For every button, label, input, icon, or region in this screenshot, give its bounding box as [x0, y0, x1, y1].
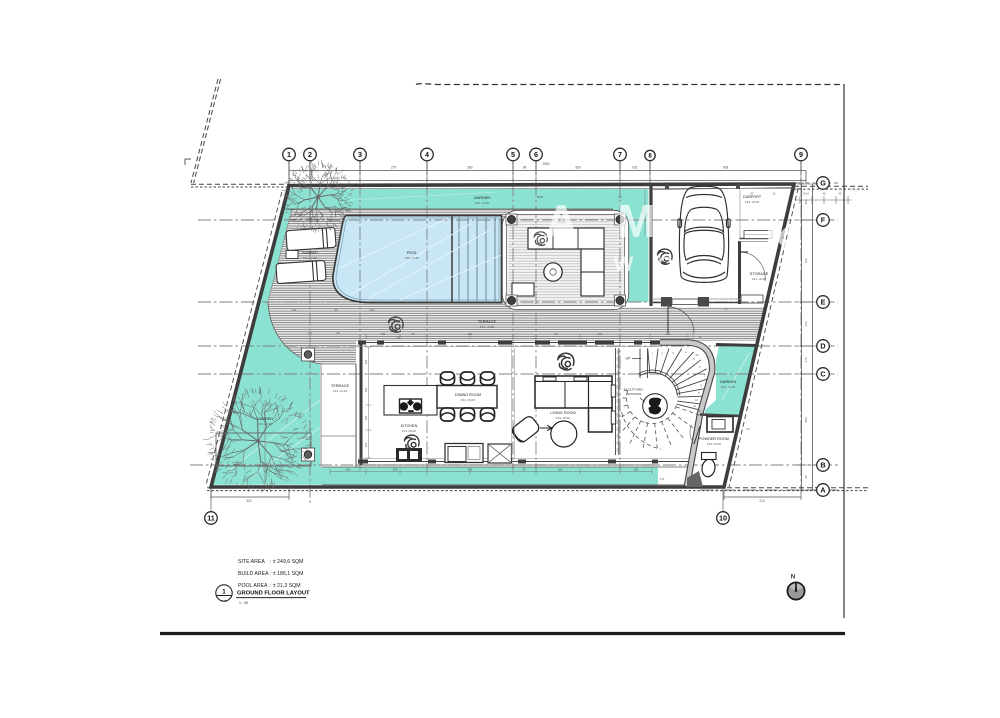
svg-text:105: 105	[364, 442, 368, 447]
svg-text:: ± 249,6 SQM: : ± 249,6 SQM	[270, 559, 303, 565]
svg-text:180: 180	[381, 332, 386, 336]
svg-text:300: 300	[393, 467, 398, 471]
svg-text:110: 110	[558, 467, 563, 471]
svg-text:FFL ±0.00: FFL ±0.00	[556, 416, 570, 420]
svg-text:110: 110	[634, 467, 639, 471]
svg-text:SUNBED: SUNBED	[302, 251, 318, 255]
svg-text:1 : 50: 1 : 50	[239, 601, 248, 605]
svg-text:FFL +0.00: FFL +0.00	[745, 200, 759, 204]
svg-text:3: 3	[358, 150, 362, 159]
svg-text:150: 150	[364, 415, 368, 420]
svg-text:DINING ROOM: DINING ROOM	[455, 393, 481, 397]
svg-text:GARDEN: GARDEN	[474, 196, 491, 200]
svg-text:: ± 186,1 SQM: : ± 186,1 SQM	[270, 571, 303, 577]
svg-text:580: 580	[575, 166, 581, 170]
svg-text:280: 280	[308, 331, 313, 335]
svg-text:STORAGE: STORAGE	[750, 272, 769, 276]
svg-text:98: 98	[523, 166, 527, 170]
svg-text:6: 6	[534, 150, 538, 159]
svg-text:1: 1	[222, 589, 226, 596]
svg-text:GROUND FLOOR LAYOUT: GROUND FLOOR LAYOUT	[237, 591, 310, 597]
svg-text:10: 10	[719, 514, 727, 523]
svg-text:430: 430	[804, 321, 808, 326]
svg-text:2980: 2980	[542, 162, 549, 166]
svg-text:20+5: 20+5	[803, 192, 809, 196]
svg-text:CARPORT: CARPORT	[743, 195, 762, 199]
svg-text:250: 250	[468, 332, 473, 336]
svg-text:BUILD AREA: BUILD AREA	[238, 571, 269, 577]
svg-text:170: 170	[660, 477, 665, 481]
svg-text:363: 363	[598, 332, 603, 336]
svg-text:631: 631	[632, 166, 638, 170]
svg-text:790: 790	[804, 258, 808, 263]
svg-text:1: 1	[287, 150, 291, 159]
svg-text:2945: 2945	[537, 195, 544, 199]
svg-text:302: 302	[246, 499, 252, 503]
svg-text:9: 9	[799, 150, 803, 159]
svg-text:GARDEN: GARDEN	[720, 380, 737, 384]
svg-text:FFL -0.20: FFL -0.20	[405, 256, 419, 260]
svg-text:FFL +0.25: FFL +0.25	[258, 422, 272, 426]
svg-text:FFL +0.21: FFL +0.21	[333, 389, 347, 393]
svg-text:105: 105	[364, 359, 368, 364]
svg-text:KITCHEN: KITCHEN	[401, 424, 418, 428]
svg-text:B: B	[820, 461, 825, 470]
svg-text:11: 11	[693, 404, 696, 408]
svg-text:SITE AREA: SITE AREA	[238, 559, 265, 565]
svg-text:270: 270	[804, 357, 808, 362]
svg-text:90: 90	[336, 331, 340, 335]
svg-text:2: 2	[308, 150, 312, 159]
svg-text:5: 5	[511, 150, 515, 159]
svg-text:279: 279	[391, 166, 397, 170]
svg-text:42: 42	[522, 467, 526, 471]
svg-text:UP: UP	[626, 357, 632, 361]
svg-text:K: K	[765, 216, 797, 265]
svg-text:4: 4	[425, 150, 429, 159]
svg-text:G: G	[820, 179, 826, 188]
svg-text:TERRACE: TERRACE	[478, 320, 497, 324]
svg-text:A-01: A-01	[221, 599, 228, 603]
svg-text:880: 880	[804, 417, 808, 422]
svg-text:11: 11	[207, 514, 215, 523]
svg-text:11: 11	[699, 409, 702, 413]
svg-text:F: F	[821, 216, 826, 225]
svg-text:FFL ±0.00: FFL ±0.00	[402, 429, 416, 433]
svg-text:10: 10	[695, 398, 699, 402]
svg-text:E: E	[821, 298, 826, 307]
svg-text:POOL AREA: POOL AREA	[238, 583, 268, 589]
svg-text:240: 240	[292, 308, 297, 312]
svg-text:90: 90	[334, 308, 338, 312]
svg-text:7: 7	[618, 150, 622, 159]
svg-text:FFL +0.25: FFL +0.25	[721, 385, 735, 389]
svg-text:POOL: POOL	[407, 251, 418, 255]
svg-text:A: A	[820, 486, 825, 495]
svg-text:300: 300	[364, 387, 368, 392]
svg-text:FFL ±0.00: FFL ±0.00	[707, 442, 721, 446]
svg-text:FFL +0.00: FFL +0.00	[752, 277, 766, 281]
svg-text:90: 90	[554, 332, 558, 336]
svg-text:FFL +0.25: FFL +0.25	[475, 201, 489, 205]
svg-text:FFL ±0.00: FFL ±0.00	[461, 398, 475, 402]
svg-text:90: 90	[411, 332, 415, 336]
svg-text:POWDER ROOM: POWDER ROOM	[699, 437, 729, 441]
svg-text:140: 140	[346, 467, 351, 471]
svg-text:: ± 21,3 SQM: : ± 21,3 SQM	[270, 583, 301, 589]
svg-text:A M: A M	[545, 195, 670, 247]
svg-text:GARDEN: GARDEN	[257, 417, 274, 421]
svg-text:908: 908	[723, 166, 729, 170]
svg-text:363: 363	[468, 467, 473, 471]
svg-text:214: 214	[759, 499, 765, 503]
svg-text:N: N	[791, 574, 796, 581]
svg-text:ARTWORK: ARTWORK	[626, 392, 641, 396]
svg-text:C: C	[820, 370, 825, 379]
svg-text:D: D	[820, 342, 825, 351]
svg-text:TERRACE: TERRACE	[331, 384, 350, 388]
svg-text:LIVING ROOM: LIVING ROOM	[550, 411, 575, 415]
svg-text:90: 90	[804, 475, 808, 479]
svg-text:FFL +0.25: FFL +0.25	[303, 256, 317, 260]
svg-text:580: 580	[467, 166, 473, 170]
svg-text:FFL +0.25: FFL +0.25	[480, 325, 494, 329]
svg-text:W O: W O	[614, 253, 683, 276]
svg-text:160: 160	[370, 308, 375, 312]
